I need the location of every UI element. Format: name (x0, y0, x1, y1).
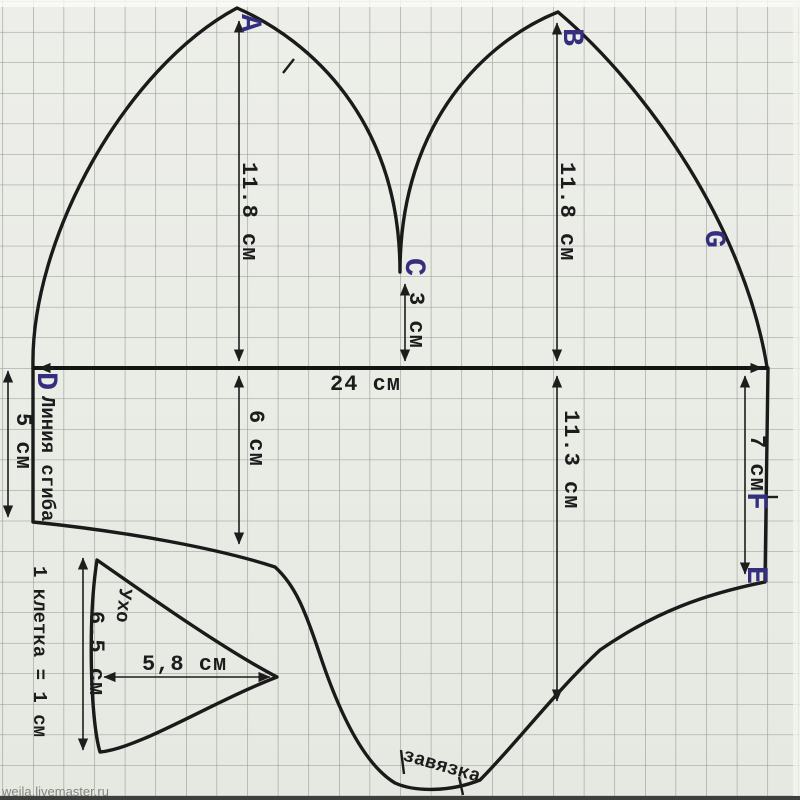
point-label-e: E (738, 566, 772, 584)
dim-label-ear-height: 6.5 см (83, 611, 108, 696)
paper-edge-right (793, 0, 800, 800)
dim-label-crown-left: 11.8 см (236, 162, 261, 261)
point-label-d: D (28, 372, 62, 390)
fold-line-label: Линия сгиба (36, 396, 58, 521)
sewing-pattern-sheet: A B C D E F G 11.8 см 11.8 см 3 см 24 см… (0, 0, 800, 800)
dim-label-front-drop: 6 см (243, 410, 268, 467)
point-label-g: G (696, 230, 730, 248)
point-label-c: C (396, 258, 430, 276)
dim-label-back-drop: 11.3 см (558, 410, 583, 509)
paper-edge-top (0, 0, 800, 7)
dim-label-notch: 3 см (403, 292, 428, 349)
dim-label-right-edge: 7 см (744, 435, 769, 492)
dim-label-fold-edge: 5 см (10, 413, 35, 470)
dim-label-ear-width: 5,8 см (142, 652, 227, 677)
ear-label: Ухо (110, 587, 135, 623)
paper-edge-bottom (0, 796, 800, 800)
point-label-f: F (738, 492, 772, 510)
pattern-diagram: A B C D E F G 11.8 см 11.8 см 3 см 24 см… (0, 0, 800, 800)
dim-label-crown-right: 11.8 см (554, 162, 579, 261)
point-label-b: B (554, 28, 588, 46)
scale-note-label: 1 клетка = 1 см (28, 566, 50, 737)
watermark: weila.livemaster.ru (1, 784, 109, 799)
dim-label-width: 24 см (330, 372, 401, 397)
point-label-a: A (232, 14, 266, 32)
